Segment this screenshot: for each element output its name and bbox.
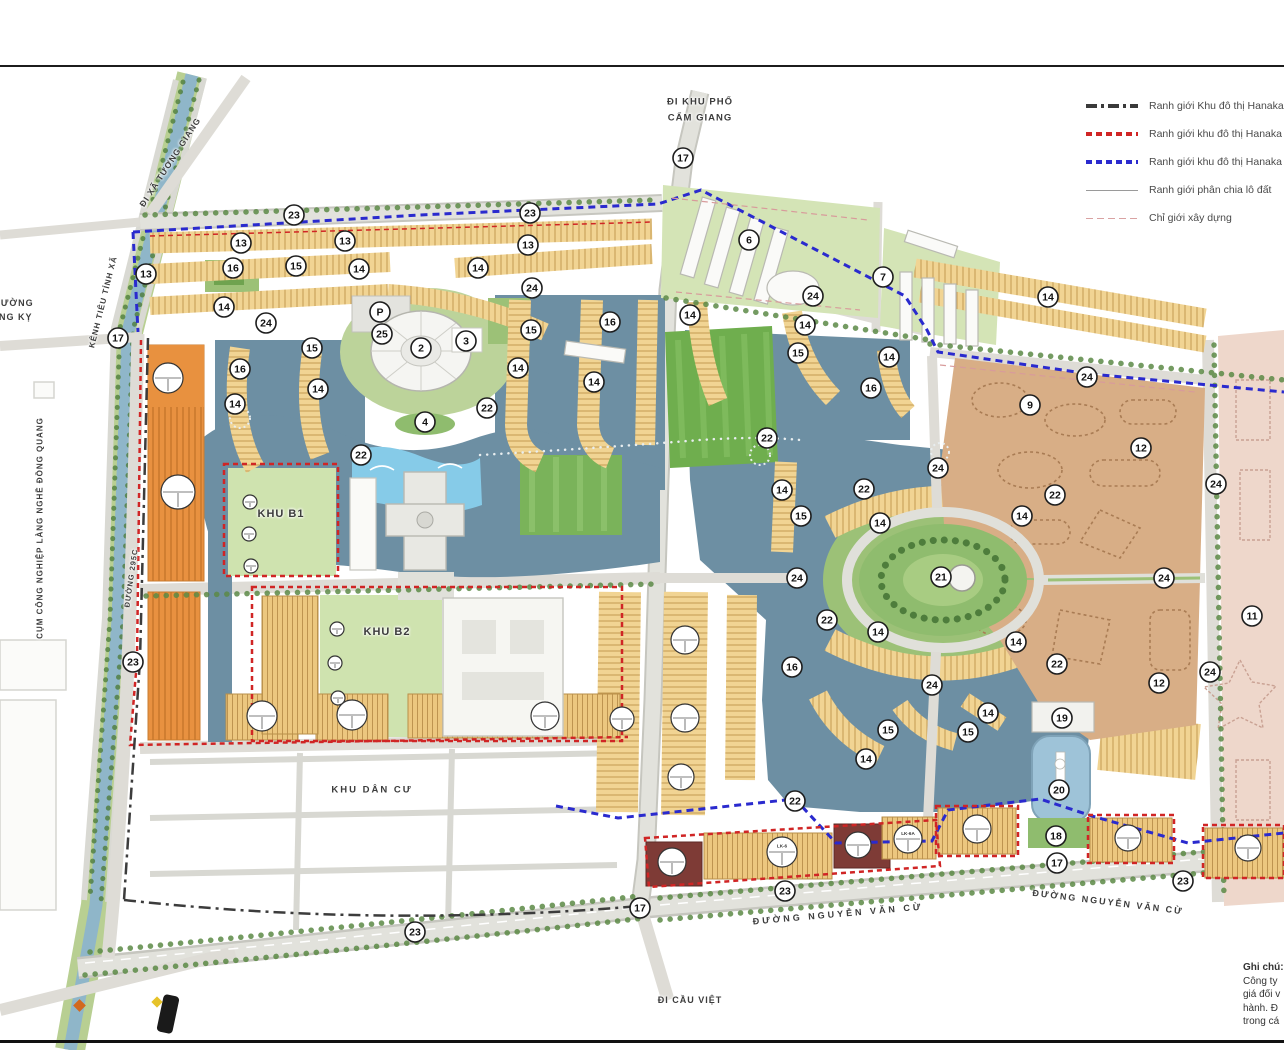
legend-label: Ranh giới khu đô thị Hanaka mở: [1149, 156, 1284, 168]
number-marker-14: 14: [349, 259, 369, 279]
khu-b2-label: KHU B2: [364, 626, 411, 638]
masterplan-page: LK-6LK-6A 172323131313131615141424241415…: [0, 0, 1284, 1050]
khu-b1-label: KHU B1: [258, 508, 305, 520]
number-marker-16: 16: [782, 657, 802, 677]
svg-text:23: 23: [779, 886, 791, 898]
number-marker-24: 24: [522, 278, 542, 298]
svg-text:14: 14: [1042, 292, 1054, 304]
cum-cong-nghiep-lang-nghe-dong-quang-label: CỤM CÔNG NGHIỆP LÀNG NGHỀ ĐỒNG QUANG: [36, 417, 45, 639]
lot-info-circle: [247, 701, 277, 731]
svg-text:14: 14: [353, 264, 365, 276]
phuong-dong-ky-line1-label: PHƯỜNG: [0, 298, 34, 308]
svg-text:17: 17: [677, 153, 689, 165]
number-marker-9: 9: [1020, 395, 1040, 415]
legend-item-3: Ranh giới phân chia lô đất: [1086, 176, 1284, 204]
svg-text:24: 24: [807, 291, 819, 303]
number-marker-24: 24: [1154, 568, 1174, 588]
lot-info-circle: [1115, 825, 1141, 851]
number-marker-4: 4: [415, 412, 435, 432]
svg-text:21: 21: [935, 572, 947, 584]
lot-info-circle: [243, 495, 257, 509]
svg-text:14: 14: [684, 310, 696, 322]
svg-text:16: 16: [786, 662, 798, 674]
svg-text:14: 14: [312, 384, 324, 396]
number-marker-14: 14: [308, 379, 328, 399]
lot-info-circle: [531, 702, 559, 730]
number-marker-13: 13: [136, 264, 156, 284]
number-marker-14: 14: [772, 480, 792, 500]
svg-text:14: 14: [982, 708, 994, 720]
svg-text:23: 23: [524, 208, 536, 220]
svg-text:14: 14: [229, 399, 241, 411]
number-marker-17: 17: [108, 328, 128, 348]
svg-text:LK-6A: LK-6A: [901, 831, 915, 836]
svg-text:3: 3: [463, 336, 469, 348]
number-marker-24: 24: [928, 458, 948, 478]
svg-text:14: 14: [1016, 511, 1028, 523]
legend-swatch-solid-gray: [1086, 190, 1138, 191]
svg-text:15: 15: [792, 348, 804, 360]
svg-text:24: 24: [926, 680, 938, 692]
number-marker-24: 24: [1077, 367, 1097, 387]
svg-text:20: 20: [1053, 785, 1065, 797]
number-marker-23: 23: [405, 922, 425, 942]
lot-info-circle: [963, 815, 991, 843]
svg-text:14: 14: [512, 363, 524, 375]
legend-label: Ranh giới Khu đô thị Hanaka - H: [1149, 100, 1284, 112]
number-marker-20: 20: [1049, 780, 1069, 800]
svg-text:14: 14: [883, 352, 895, 364]
lot-info-circle: [671, 626, 699, 654]
number-marker-14: 14: [868, 622, 888, 642]
top-rule: [0, 65, 1284, 67]
notes-lines: Công tygiá đối vhành. Đtrong cá: [1243, 975, 1284, 1029]
legend-label: Ranh giới phân chia lô đất: [1149, 184, 1271, 196]
number-marker-14: 14: [870, 513, 890, 533]
svg-text:14: 14: [872, 627, 884, 639]
number-marker-14: 14: [879, 347, 899, 367]
legend-swatch-dashed-blue: [1086, 160, 1138, 164]
svg-text:22: 22: [761, 433, 773, 445]
legend-item-4: Chỉ giới xây dựng: [1086, 204, 1284, 232]
lot-info-circle: [671, 704, 699, 732]
number-marker-14: 14: [978, 703, 998, 723]
svg-text:24: 24: [1210, 479, 1222, 491]
number-marker-P: P: [370, 302, 390, 322]
di-cau-viet-label: ĐI CẦU VIỆT: [658, 995, 723, 1005]
svg-text:22: 22: [355, 450, 367, 462]
note-line: giá đối v: [1243, 988, 1284, 1002]
number-marker-13: 13: [335, 231, 355, 251]
lot-info-circle: [845, 832, 871, 858]
svg-text:14: 14: [218, 302, 230, 314]
svg-text:14: 14: [799, 320, 811, 332]
svg-text:22: 22: [1051, 659, 1063, 671]
svg-text:14: 14: [472, 263, 484, 275]
number-marker-15: 15: [286, 256, 306, 276]
lot-info-circle: LK-6: [767, 837, 797, 867]
lot-info-circle: [610, 707, 634, 731]
number-marker-19: 19: [1052, 708, 1072, 728]
number-marker-17: 17: [1047, 853, 1067, 873]
number-marker-24: 24: [803, 286, 823, 306]
svg-text:23: 23: [1177, 876, 1189, 888]
number-marker-15: 15: [878, 720, 898, 740]
lot-info-circle: [244, 559, 258, 573]
svg-text:13: 13: [235, 238, 247, 250]
number-marker-24: 24: [1206, 474, 1226, 494]
lot-info-circle: [1235, 835, 1261, 861]
number-marker-14: 14: [1006, 632, 1026, 652]
svg-text:24: 24: [932, 463, 944, 475]
number-marker-22: 22: [817, 610, 837, 630]
number-marker-25: 25: [372, 324, 392, 344]
svg-text:23: 23: [288, 210, 300, 222]
number-marker-14: 14: [1038, 287, 1058, 307]
svg-text:7: 7: [880, 272, 886, 284]
number-marker-22: 22: [1045, 485, 1065, 505]
khu-dan-cu-label: KHU DÂN CƯ: [331, 785, 412, 796]
number-marker-22: 22: [785, 791, 805, 811]
svg-text:22: 22: [789, 796, 801, 808]
number-marker-14: 14: [468, 258, 488, 278]
number-marker-23: 23: [1173, 871, 1193, 891]
number-marker-3: 3: [456, 331, 476, 351]
number-marker-6: 6: [739, 230, 759, 250]
number-marker-22: 22: [1047, 654, 1067, 674]
number-marker-12: 12: [1149, 673, 1169, 693]
svg-text:15: 15: [525, 325, 537, 337]
svg-text:P: P: [376, 307, 383, 319]
svg-text:16: 16: [604, 317, 616, 329]
svg-text:13: 13: [140, 269, 152, 281]
number-marker-22: 22: [477, 398, 497, 418]
svg-text:15: 15: [795, 511, 807, 523]
svg-text:16: 16: [234, 364, 246, 376]
number-marker-22: 22: [757, 428, 777, 448]
legend-label: Chỉ giới xây dựng: [1149, 212, 1232, 224]
number-marker-22: 22: [351, 445, 371, 465]
notes-block: Ghi chú: Công tygiá đối vhành. Đtrong cá: [1243, 961, 1284, 1029]
svg-text:23: 23: [409, 927, 421, 939]
svg-text:12: 12: [1153, 678, 1165, 690]
number-marker-24: 24: [922, 675, 942, 695]
number-marker-14: 14: [214, 297, 234, 317]
number-marker-21: 21: [931, 567, 951, 587]
legend-item-1: Ranh giới khu đô thị Hanaka đã p: [1086, 120, 1284, 148]
svg-text:16: 16: [865, 383, 877, 395]
lot-info-circle: [658, 848, 686, 876]
number-marker-23: 23: [123, 652, 143, 672]
svg-text:2: 2: [418, 343, 424, 355]
svg-text:14: 14: [860, 754, 872, 766]
svg-text:12: 12: [1135, 443, 1147, 455]
svg-text:22: 22: [481, 403, 493, 415]
number-marker-11: 11: [1242, 606, 1262, 626]
legend-swatch-dashdot-black: [1086, 104, 1138, 108]
number-marker-15: 15: [788, 343, 808, 363]
number-marker-2: 2: [411, 338, 431, 358]
svg-text:24: 24: [260, 318, 272, 330]
notes-title: Ghi chú:: [1243, 961, 1284, 975]
svg-text:19: 19: [1056, 713, 1068, 725]
svg-text:18: 18: [1050, 831, 1062, 843]
svg-text:14: 14: [776, 485, 788, 497]
svg-text:14: 14: [588, 377, 600, 389]
svg-text:24: 24: [1204, 667, 1216, 679]
svg-text:22: 22: [821, 615, 833, 627]
note-line: trong cá: [1243, 1015, 1284, 1029]
lot-info-circle: [242, 527, 256, 541]
lot-info-circle: [153, 363, 183, 393]
bottom-rule: [0, 1040, 1284, 1043]
number-marker-12: 12: [1131, 438, 1151, 458]
svg-text:25: 25: [376, 329, 388, 341]
number-marker-14: 14: [225, 394, 245, 414]
number-marker-24: 24: [256, 313, 276, 333]
lot-info-circle: LK-6A: [894, 825, 922, 853]
phuong-dong-ky-line2-label: ĐỒNG KỴ: [0, 312, 33, 322]
number-marker-14: 14: [584, 372, 604, 392]
lot-info-circle: [331, 691, 345, 705]
number-marker-16: 16: [230, 359, 250, 379]
svg-text:24: 24: [791, 573, 803, 585]
svg-text:16: 16: [227, 263, 239, 275]
lot-info-circle: [328, 656, 342, 670]
number-marker-13: 13: [518, 235, 538, 255]
svg-text:9: 9: [1027, 400, 1033, 412]
svg-text:15: 15: [882, 725, 894, 737]
number-marker-23: 23: [284, 205, 304, 225]
number-marker-14: 14: [856, 749, 876, 769]
legend-item-2: Ranh giới khu đô thị Hanaka mở: [1086, 148, 1284, 176]
number-marker-22: 22: [854, 479, 874, 499]
number-marker-24: 24: [787, 568, 807, 588]
legend-item-0: Ranh giới Khu đô thị Hanaka - H: [1086, 92, 1284, 120]
note-line: hành. Đ: [1243, 1002, 1284, 1016]
note-line: Công ty: [1243, 975, 1284, 989]
number-marker-16: 16: [600, 312, 620, 332]
lot-info-circle: [161, 475, 195, 509]
number-marker-13: 13: [231, 233, 251, 253]
number-marker-14: 14: [508, 358, 528, 378]
svg-text:17: 17: [634, 903, 646, 915]
svg-text:LK-6: LK-6: [777, 844, 788, 849]
svg-text:24: 24: [526, 283, 538, 295]
legend-swatch-dashed-red: [1086, 132, 1138, 136]
legend-label: Ranh giới khu đô thị Hanaka đã p: [1149, 128, 1284, 140]
lot-info-circle: [668, 764, 694, 790]
svg-text:22: 22: [858, 484, 870, 496]
svg-text:23: 23: [127, 657, 139, 669]
svg-text:17: 17: [1051, 858, 1063, 870]
number-marker-15: 15: [958, 722, 978, 742]
number-marker-15: 15: [302, 338, 322, 358]
svg-text:17: 17: [112, 333, 124, 345]
svg-text:6: 6: [746, 235, 752, 247]
lot-info-circle: [330, 622, 344, 636]
cam-giang-label: CẨM GIANG: [668, 113, 732, 124]
number-marker-17: 17: [630, 898, 650, 918]
svg-text:24: 24: [1081, 372, 1093, 384]
legend: Ranh giới Khu đô thị Hanaka - HRanh giới…: [1086, 92, 1284, 232]
legend-swatch-dashed-pink: [1086, 218, 1138, 219]
number-marker-15: 15: [791, 506, 811, 526]
number-marker-16: 16: [223, 258, 243, 278]
number-marker-14: 14: [1012, 506, 1032, 526]
svg-text:15: 15: [306, 343, 318, 355]
number-marker-23: 23: [775, 881, 795, 901]
svg-text:14: 14: [1010, 637, 1022, 649]
svg-text:22: 22: [1049, 490, 1061, 502]
number-marker-15: 15: [521, 320, 541, 340]
svg-text:13: 13: [522, 240, 534, 252]
svg-text:15: 15: [962, 727, 974, 739]
svg-text:13: 13: [339, 236, 351, 248]
number-marker-18: 18: [1046, 826, 1066, 846]
svg-text:11: 11: [1246, 611, 1257, 623]
svg-text:15: 15: [290, 261, 302, 273]
svg-text:4: 4: [422, 417, 428, 429]
svg-text:24: 24: [1158, 573, 1170, 585]
number-marker-17: 17: [673, 148, 693, 168]
svg-text:14: 14: [874, 518, 886, 530]
di-khu-pho-label: ĐI KHU PHỐ: [667, 97, 733, 108]
number-marker-14: 14: [680, 305, 700, 325]
number-marker-23: 23: [520, 203, 540, 223]
number-marker-7: 7: [873, 267, 893, 287]
number-marker-16: 16: [861, 378, 881, 398]
number-marker-24: 24: [1200, 662, 1220, 682]
number-marker-14: 14: [795, 315, 815, 335]
